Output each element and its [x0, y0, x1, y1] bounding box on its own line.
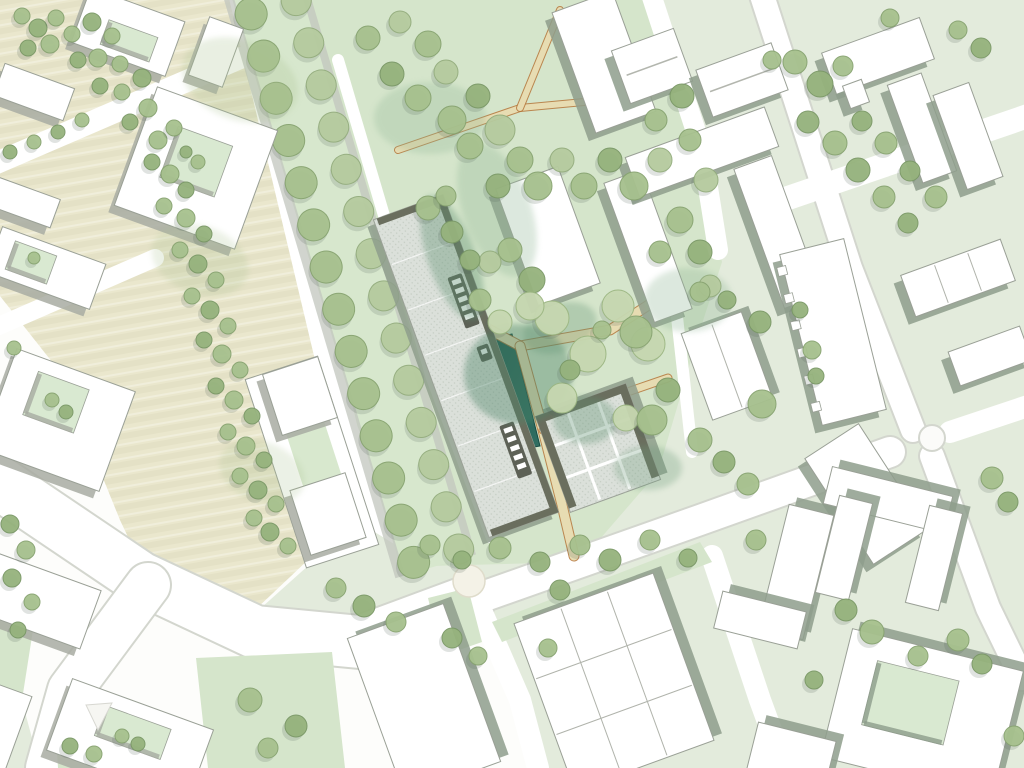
tree-canopy [620, 316, 652, 348]
tree-canopy [640, 530, 660, 550]
tree-canopy [667, 207, 693, 233]
tree-canopy [386, 612, 406, 632]
tree-canopy [783, 50, 807, 74]
tree-canopy [213, 345, 231, 363]
tree-canopy [104, 28, 120, 44]
tree-canopy [208, 272, 224, 288]
tree-canopy [972, 654, 992, 674]
tree-canopy [860, 620, 884, 644]
tree-canopy [246, 510, 262, 526]
tree-canopy [139, 99, 157, 117]
tree-canopy [469, 647, 487, 665]
tree-canopy [201, 301, 219, 319]
tree-canopy [20, 40, 36, 56]
tree-canopy [258, 738, 278, 758]
tree-canopy [41, 35, 59, 53]
tree-canopy [166, 120, 182, 136]
tree-canopy [189, 255, 207, 273]
tree-canopy [256, 452, 272, 468]
tree-canopy [466, 84, 490, 108]
tree-canopy [415, 31, 441, 57]
tree-canopy [184, 288, 200, 304]
tree-canopy [232, 362, 248, 378]
balcony-bump [777, 266, 788, 277]
tree-canopy [460, 250, 480, 270]
tree-canopy [83, 13, 101, 31]
tree-canopy [620, 172, 648, 200]
tree-canopy [238, 688, 262, 712]
tree-canopy [225, 391, 243, 409]
tree-canopy [232, 468, 248, 484]
tree-canopy [1004, 726, 1024, 746]
tree-canopy [489, 537, 511, 559]
tree-canopy [835, 599, 857, 621]
tree-canopy [131, 737, 145, 751]
tree-canopy [803, 341, 821, 359]
tree-canopy [208, 378, 224, 394]
tree-canopy [498, 238, 522, 262]
tree-canopy [925, 186, 947, 208]
tree-canopy [694, 168, 718, 192]
tree-canopy [833, 56, 853, 76]
tree-canopy [434, 60, 458, 84]
tree-canopy [326, 578, 346, 598]
tree-canopy [237, 437, 255, 455]
tree-canopy [196, 332, 212, 348]
tree-canopy [846, 158, 870, 182]
tree-canopy [971, 38, 991, 58]
tree-canopy [29, 19, 47, 37]
tree-canopy [17, 541, 35, 559]
tree-canopy [488, 310, 512, 334]
tree-canopy [656, 378, 680, 402]
tree-canopy [807, 71, 833, 97]
tree-canopy [560, 360, 580, 380]
tree-canopy [530, 552, 550, 572]
tree-canopy [64, 26, 80, 42]
tree-canopy [599, 549, 621, 571]
tree-canopy [670, 84, 694, 108]
tree-canopy [688, 428, 712, 452]
tree-canopy [28, 252, 40, 264]
site-plan-svg [0, 0, 1024, 768]
tree-canopy [507, 147, 533, 173]
tree-canopy [763, 51, 781, 69]
tree-canopy [3, 145, 17, 159]
tree-canopy [62, 738, 78, 754]
tree-canopy [900, 161, 920, 181]
tree-canopy [797, 111, 819, 133]
tree-canopy [353, 595, 375, 617]
site-plan: Architectural site plan – urban masterpl… [0, 0, 1024, 768]
tree-canopy [898, 213, 918, 233]
tree-canopy [405, 85, 431, 111]
tree-canopy [718, 291, 736, 309]
tree-canopy [873, 186, 895, 208]
tree-canopy [479, 251, 501, 273]
tree-canopy [285, 715, 307, 737]
tree-canopy [539, 639, 557, 657]
tree-canopy [679, 549, 697, 567]
tree-canopy [261, 523, 279, 541]
tree-canopy [593, 321, 611, 339]
tree-canopy [220, 318, 236, 334]
tree-canopy [441, 221, 463, 243]
tree-canopy [48, 10, 64, 26]
tree-canopy [947, 629, 969, 651]
tree-canopy [823, 131, 847, 155]
tree-canopy [524, 172, 552, 200]
tree-canopy [180, 146, 192, 158]
tree-canopy [688, 240, 712, 264]
tree-canopy [380, 62, 404, 86]
tree-canopy [875, 132, 897, 154]
tree-canopy [59, 405, 73, 419]
tree-canopy [1, 515, 19, 533]
tree-canopy [805, 671, 823, 689]
tree-canopy [196, 226, 212, 242]
tree-canopy [485, 115, 515, 145]
tree-canopy [550, 580, 570, 600]
balcony-bump [811, 401, 822, 412]
tree-canopy [457, 133, 483, 159]
tree-canopy [177, 209, 195, 227]
tree-canopy [3, 569, 21, 587]
tree-canopy [469, 289, 491, 311]
tree-canopy [645, 109, 667, 131]
tree-canopy [7, 341, 21, 355]
tree-canopy [178, 182, 194, 198]
tree-canopy [981, 467, 1003, 489]
tree-canopy [649, 241, 671, 263]
tree-canopy [547, 383, 577, 413]
tree-canopy [637, 405, 667, 435]
tree-canopy [486, 174, 510, 198]
tree-canopy [51, 125, 65, 139]
tree-canopy [690, 282, 710, 302]
tree-canopy [249, 481, 267, 499]
tree-canopy [881, 9, 899, 27]
tree-canopy [280, 538, 296, 554]
tree-canopy [356, 26, 380, 50]
tree-canopy [908, 646, 928, 666]
roundabout [919, 425, 945, 451]
tree-canopy [86, 746, 102, 762]
tree-canopy [749, 311, 771, 333]
tree-canopy [436, 186, 456, 206]
tree-canopy [746, 530, 766, 550]
tree-canopy [122, 114, 138, 130]
tree-canopy [14, 8, 30, 24]
tree-canopy [713, 451, 735, 473]
tree-canopy [737, 473, 759, 495]
tree-canopy [10, 622, 26, 638]
tree-canopy [220, 424, 236, 440]
balcony-bump [784, 293, 795, 304]
tree-canopy [792, 302, 808, 318]
tree-canopy [24, 594, 40, 610]
tree-canopy [75, 113, 89, 127]
tree-canopy [156, 198, 172, 214]
tree-canopy [112, 56, 128, 72]
tree-canopy [808, 368, 824, 384]
tree-canopy [420, 535, 440, 555]
tree-canopy [244, 408, 260, 424]
tree-canopy [998, 492, 1018, 512]
tree-canopy [268, 496, 284, 512]
tree-canopy [570, 535, 590, 555]
tree-canopy [389, 11, 411, 33]
tree-canopy [172, 242, 188, 258]
tree-canopy [598, 148, 622, 172]
tree-canopy [748, 390, 776, 418]
tree-canopy [92, 78, 108, 94]
tree-canopy [442, 628, 462, 648]
tree-canopy [70, 52, 86, 68]
tree-canopy [519, 267, 545, 293]
tree-canopy [550, 148, 574, 172]
tree-canopy [161, 165, 179, 183]
tree-canopy [27, 135, 41, 149]
tree-canopy [453, 551, 471, 569]
tree-canopy [114, 84, 130, 100]
tree-canopy [133, 69, 151, 87]
tree-canopy [438, 106, 466, 134]
tree-canopy [852, 111, 872, 131]
tree-canopy [115, 729, 129, 743]
tree-canopy [191, 155, 205, 169]
tree-canopy [949, 21, 967, 39]
tree-canopy [571, 173, 597, 199]
tree-canopy [516, 292, 544, 320]
tree-canopy [144, 154, 160, 170]
tree-canopy [45, 393, 59, 407]
tree-canopy [89, 49, 107, 67]
tree-canopy [648, 148, 672, 172]
shrub-mass-8 [614, 446, 682, 490]
tree-canopy [679, 129, 701, 151]
